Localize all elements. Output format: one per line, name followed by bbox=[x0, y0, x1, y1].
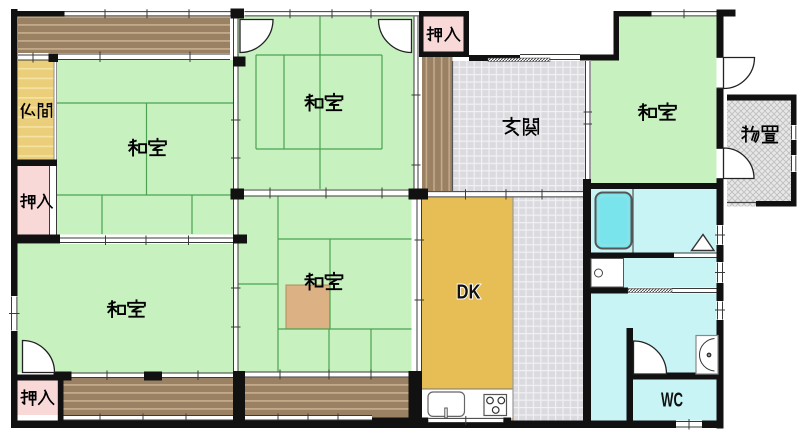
svg-text:DK: DK bbox=[457, 282, 481, 304]
svg-text:WC: WC bbox=[661, 390, 683, 412]
